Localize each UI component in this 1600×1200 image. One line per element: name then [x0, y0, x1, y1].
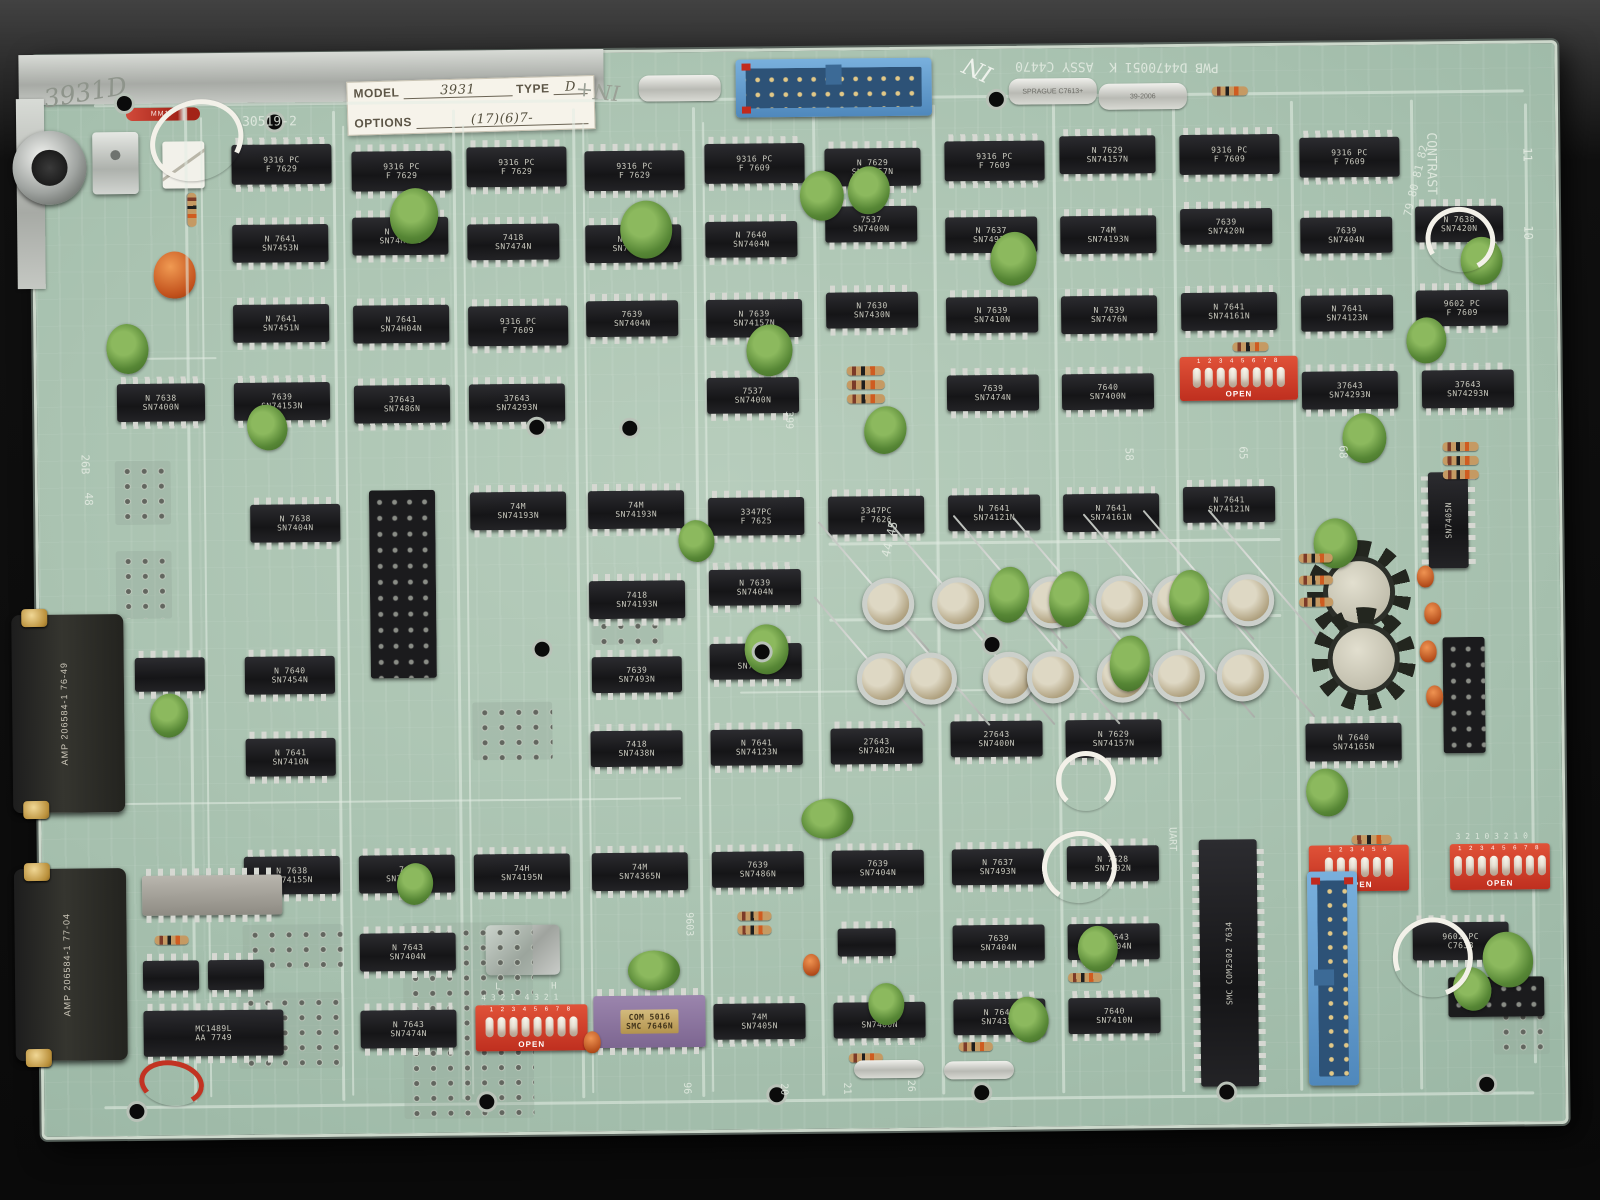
ic-chip-label: 27643 SN7402N: [858, 737, 895, 755]
ic-chip-label: COM 5016 SMC 7646N: [620, 1009, 679, 1034]
ic-chip: N 7640 SN74165N: [1305, 723, 1401, 762]
ic-chip-label: 7640 SN7410N: [1096, 1007, 1133, 1025]
mounting-hole: [479, 1094, 494, 1109]
resistor: [1442, 442, 1478, 451]
ic-chip-label: 7639 SN7404N: [980, 934, 1017, 952]
silkscreen-text: 68: [1337, 445, 1350, 458]
transistor-can: [905, 652, 958, 705]
wire-jumper: [1036, 825, 1123, 910]
dsub-connector-upper: AMP 206584-1 76-49: [11, 614, 125, 813]
tantalum-capacitor: [1420, 640, 1437, 662]
ic-chip: N 7630 SN7430N: [826, 292, 918, 329]
copper-trace: [342, 126, 354, 1096]
ic-chip-label: 74M SN74193N: [1087, 226, 1129, 244]
dip-switch-rocker: [1466, 856, 1474, 876]
ic-chip-label: 9316 PC F 7629: [263, 155, 300, 173]
silkscreen-text: L: [495, 982, 501, 992]
ic-chip: [208, 960, 264, 991]
dip-switch-rocker: [1538, 855, 1546, 875]
ic-chip-label: N 7641 SN7410N: [272, 748, 309, 766]
circuit-board: MM1P MODEL 3931 TYPE D OPTIONS (17)(6)7-…: [30, 40, 1568, 1140]
ic-chip: 37643 SN74293N: [469, 383, 565, 422]
ic-chip-label: 7639 SN7404N: [1328, 226, 1365, 244]
ic-chip-label: 7639 SN7493N: [619, 666, 656, 684]
ic-chip: N 7641 SN74161N: [1181, 292, 1277, 331]
ic-chip: 74M SN7405N: [713, 1003, 805, 1040]
dsub-label: AMP 206584-1 76-49: [58, 662, 69, 766]
idc-notch: [1314, 970, 1334, 986]
ic-chip-label: 7639 SN7404N: [614, 310, 651, 328]
disc-capacitor: [104, 322, 151, 376]
ic-chip: SN7405N: [1428, 472, 1469, 568]
silkscreen-text: UART: [1167, 827, 1178, 851]
resistor: [155, 935, 189, 944]
ic-chip-label: N 7629 SN74157N: [1093, 730, 1135, 748]
ic-chip: 37643 SN74293N: [1302, 371, 1398, 410]
idc-polarity-mark: [1311, 878, 1320, 885]
dip-switch-rocker: [557, 1016, 565, 1036]
ic-chip-label: N 7641 SN74161N: [1090, 504, 1132, 522]
dip-switch: 1 2 3 4 5 6 7 8OPEN: [475, 1004, 587, 1051]
ic-chip: 74H SN74195N: [474, 853, 570, 892]
ic-chip: 7639 SN7420N: [1180, 208, 1272, 245]
ic-chip-label: 37643 SN74293N: [1329, 381, 1371, 399]
silkscreen-text: 10: [1521, 225, 1535, 240]
resistor: [959, 1042, 993, 1051]
dip-switch-rocker: [1193, 368, 1201, 388]
ic-chip-label: 9316 PC F 7629: [498, 158, 535, 176]
ic-chip: N 7639 SN7476N: [1061, 295, 1157, 334]
ic-chip: 7639 SN7404N: [1300, 217, 1392, 254]
ic-chip-label: 9316 PC F 7629: [383, 162, 420, 180]
ic-chip-label: N 7639 SN7404N: [737, 578, 774, 596]
ic-chip-label: 7640 SN7400N: [1090, 383, 1127, 401]
ic-chip-label: 74H SN74195N: [501, 864, 543, 882]
dip-switch-rockers: [1193, 365, 1285, 390]
transistor-can: [1027, 651, 1080, 704]
ic-chip: SMC COM2502 7634: [1199, 839, 1260, 1087]
idc-connector-top: [735, 58, 932, 118]
dip-switch-rocker: [1229, 367, 1237, 387]
ic-chip: N 7638 SN7400N: [117, 383, 205, 422]
ic-chip: N 7641 SN7453N: [232, 224, 328, 263]
ic-chip-label: N 7629 SN74157N: [1086, 146, 1128, 164]
toroid-inductor: [1311, 607, 1416, 712]
ic-chip: 3347PC F 7626: [828, 496, 924, 535]
disc-capacitor: [1302, 765, 1352, 820]
tantalum-capacitor: [1424, 602, 1441, 624]
disc-capacitor: [800, 171, 845, 221]
model-label: MODEL: [353, 85, 399, 100]
hole-grid: [115, 461, 172, 526]
ic-chip-label: N 7638 SN7400N: [143, 393, 180, 411]
silkscreen-text: 21: [841, 1082, 852, 1094]
ic-chip-label: N 7643 SN7404N: [389, 943, 426, 961]
silkscreen-text: 9603: [683, 912, 694, 936]
mounting-hole: [1479, 1077, 1494, 1092]
axial-capacitor: [854, 1060, 924, 1079]
options-value: (17)(6)7-: [416, 111, 589, 129]
resistor: [738, 925, 772, 934]
ic-chip-label: N 7640 SN7404N: [733, 230, 770, 248]
ic-chip: 74M SN74193N: [1060, 215, 1156, 254]
ic-chip: 7640 SN7400N: [1062, 373, 1154, 410]
ic-chip: N 7641 SN74121N: [1183, 486, 1275, 523]
idc-polarity-mark: [742, 106, 751, 113]
transistor-can: [1096, 575, 1149, 628]
bnc-connector: [12, 130, 87, 205]
ic-chip: 3347PC F 7625: [708, 497, 804, 536]
ic-chip: 74M SN74193N: [470, 491, 566, 530]
resistor: [1299, 553, 1333, 562]
ic-chip: [135, 657, 205, 692]
ic-chip-label: 7418 SN74193N: [616, 590, 658, 608]
ic-chip: 27643 SN7402N: [830, 728, 922, 765]
dip-switch-rocker: [1253, 367, 1261, 387]
ic-chip: 7639 SN7404N: [953, 924, 1045, 961]
ic-chip: 7537 SN7400N: [707, 377, 799, 414]
dsub-label: AMP 206584-1 77-04: [61, 913, 72, 1017]
ic-chip: 9316 PC F 7609: [944, 140, 1044, 181]
dip-switch: 1 2 3 4 5 6 7 8OPEN: [1180, 356, 1298, 401]
ic-chip-label: 74M SN74193N: [497, 502, 539, 520]
dsub-connector-lower: AMP 206584-1 77-04: [14, 868, 128, 1061]
idc-polarity-mark: [741, 63, 750, 70]
dip-switch-rocker: [1454, 856, 1462, 876]
dip-switch-rocker: [1277, 367, 1285, 387]
ic-chip: [142, 874, 282, 915]
ic-chip-label: 37643 SN74293N: [496, 394, 538, 412]
ic-chip: 7639 SN7404N: [832, 850, 924, 887]
mounting-hole: [535, 642, 550, 657]
dip-switch: 1 2 3 4 5 6 7 8OPEN: [1450, 843, 1550, 890]
ic-chip-label: 27643 SN7400N: [978, 730, 1015, 748]
silkscreen-text: 26: [905, 1080, 916, 1092]
dip-switch-rocker: [1385, 857, 1393, 877]
resistor: [1068, 973, 1102, 982]
resistor: [847, 380, 885, 389]
resistor: [1299, 597, 1333, 606]
dip-switch-rocker: [545, 1017, 553, 1037]
ic-chip: N 7643 SN7474N: [360, 1010, 456, 1049]
ic-chip-label: N 7639 SN7476N: [1091, 306, 1128, 324]
ic-socket: [1443, 637, 1486, 753]
dip-switch-rocker: [533, 1017, 541, 1037]
ic-chip-label: 9316 PC F 7609: [976, 152, 1013, 170]
resistor: [1212, 86, 1248, 95]
ic-chip-label: 7418 SN7474N: [495, 233, 532, 251]
jackscrew: [24, 863, 50, 881]
toggle-switch: [92, 132, 139, 194]
ic-chip: 9316 PC F 7609: [704, 143, 804, 184]
resistor: [847, 366, 885, 375]
axial-capacitor: [944, 1061, 1014, 1080]
axial-capacitor: [639, 75, 721, 102]
dip-switch-rocker: [1361, 857, 1369, 877]
hole-grid: [472, 702, 553, 761]
ic-chip-label: 9316 PC F 7609: [500, 317, 537, 335]
dip-switch-rocker: [485, 1017, 493, 1037]
ic-chip: N 7629 SN74157N: [1059, 135, 1155, 174]
silkscreen-text: 20: [778, 1083, 789, 1095]
ic-chip: 7639 SN7486N: [712, 851, 804, 888]
transistor-can: [1217, 649, 1270, 702]
dip-switch-rockers: [1454, 852, 1546, 879]
disc-capacitor: [868, 983, 904, 1025]
ic-chip-label: 9316 PC F 7609: [1211, 145, 1248, 163]
ic-chip: N 7641 SN7410N: [246, 738, 336, 777]
jackscrew: [26, 1049, 52, 1067]
copper-trace: [200, 117, 212, 1097]
silkscreen-text: H: [551, 982, 557, 992]
silkscreen-text: 4 3 2 1 4 3 2 1: [481, 993, 558, 1003]
dip-switch-rocker: [1478, 856, 1486, 876]
ic-chip-label: 9316 PC F 7609: [1331, 148, 1368, 166]
copper-trace: [104, 1091, 1534, 1109]
ic-chip: 9316 PC F 7629: [466, 146, 566, 187]
ic-chip: 9316 PC F 7609: [468, 305, 568, 346]
orange-capacitor: [153, 251, 195, 298]
silkscreen-text: 58: [1123, 447, 1136, 460]
dip-switch-open-label: OPEN: [1487, 879, 1514, 888]
ic-chip: 37643 SN74293N: [1422, 370, 1514, 409]
ic-chip-label: SN7405N: [1444, 502, 1453, 539]
dip-switch-rocker: [509, 1017, 517, 1037]
ic-chip-label: N 7637 SN7493N: [980, 858, 1017, 876]
tantalum-capacitor: [1417, 565, 1434, 587]
ic-chip: 74M SN74193N: [588, 490, 684, 529]
ic-socket: [369, 490, 437, 679]
ic-chip-label: N 7641 SN74123N: [736, 738, 778, 756]
ic-chip: N 7641 SN74123N: [1301, 295, 1393, 332]
hole-grid: [116, 551, 173, 620]
jackscrew: [23, 801, 49, 819]
tantalum-capacitor: [803, 954, 820, 976]
silkscreen-text: 3 2 1 0 3 2 1 0: [1456, 831, 1528, 841]
ic-chip-label: 7639 SN7486N: [740, 860, 777, 878]
ic-chip-label: N 7640 SN7454N: [272, 666, 309, 684]
ic-chip: N 7640 SN7454N: [245, 656, 335, 695]
ic-chip-label: 74M SN74193N: [615, 500, 657, 518]
dip-switch-rocker: [497, 1017, 505, 1037]
resistor: [1443, 456, 1479, 465]
ic-chip-label: 9316 PC F 7629: [616, 162, 653, 180]
axial-capacitor: SPRAGUE C7613+: [1009, 78, 1097, 105]
dip-switch-rocker: [1490, 856, 1498, 876]
ic-chip-label: 7537 SN7400N: [853, 215, 890, 233]
ic-chip-label: N 7640 SN74165N: [1333, 733, 1375, 751]
dip-switch-rocker: [521, 1017, 529, 1037]
ic-chip-label: N 7641 SN74121N: [973, 504, 1015, 522]
ic-chip-label: 37643 SN7486N: [384, 395, 421, 413]
ic-chip: 7639 SN7404N: [586, 300, 678, 337]
dip-switch-rocker: [1526, 855, 1534, 875]
ic-chip-label: N 7639 SN7410N: [974, 306, 1011, 324]
silkscreen-text: 26B: [79, 454, 92, 474]
ic-chip-label: 7639 SN7420N: [1208, 217, 1245, 235]
ic-chip-label: N 7641 SN7453N: [262, 234, 299, 252]
silkscreen-text: PWB D4470051 K ASSY C4470: [1015, 58, 1219, 74]
silkscreen-text: 11: [1520, 147, 1534, 162]
tantalum-capacitor: [1426, 685, 1443, 707]
ic-chip-label: 3347PC F 7625: [740, 507, 771, 525]
ic-chip: 7418 SN7474N: [467, 223, 559, 260]
ic-chip-label: 7537 SN7400N: [735, 386, 772, 404]
ic-chip: N 7640 SN7404N: [705, 221, 797, 258]
resistor: [1352, 835, 1392, 844]
ic-chip-label: N 7641 SN74161N: [1208, 302, 1250, 320]
handwriting-text: IN+: [575, 78, 621, 105]
ic-chip: 27643 SN7400N: [950, 720, 1042, 757]
ic-chip: N 7641 SN7451N: [233, 304, 329, 343]
mounting-hole: [1219, 1084, 1234, 1099]
silkscreen-text: 96: [681, 1082, 692, 1094]
idc-notch: [826, 65, 842, 85]
ic-chip: 7639 SN7493N: [592, 656, 682, 693]
ic-chip: 9316 PC F 7609: [1179, 134, 1279, 175]
ic-chip-label: 37643 SN74293N: [1447, 380, 1489, 398]
ic-chip-label: N 7643 SN7474N: [390, 1020, 427, 1038]
ic-chip-label: 74M SN7405N: [741, 1012, 778, 1030]
disc-capacitor: [620, 200, 673, 259]
axial-capacitor-label: SPRAGUE C7613+: [1022, 88, 1083, 96]
ic-chip: 9316 PC F 7629: [584, 150, 684, 191]
ic-chip-label: N 7641 SN74121N: [1208, 495, 1250, 513]
ic-chip: N 7643 SN7404N: [360, 933, 456, 972]
transistor-can: [862, 578, 915, 631]
ic-chip-label: 74M SN74365N: [619, 862, 661, 880]
ic-chip: 37643 SN7486N: [354, 385, 450, 424]
mounting-hole: [989, 92, 1004, 107]
ic-chip: N 7639 SN7404N: [709, 569, 801, 606]
ic-chip: N 7641 SN74123N: [710, 729, 802, 766]
resistor: [1299, 575, 1333, 584]
ic-chip: COM 5016 SMC 7646N: [593, 995, 706, 1048]
ic-chip: 7418 SN74193N: [589, 580, 685, 619]
options-label: OPTIONS: [354, 115, 412, 131]
silkscreen-text: 65: [1237, 446, 1250, 459]
resistor: [847, 394, 885, 403]
ic-chip: MC1489L AA 7749: [143, 1009, 283, 1056]
ic-chip: 9316 PC F 7609: [1299, 137, 1399, 178]
ic-chip-label: 9602 PC F 7609: [1444, 299, 1481, 317]
ic-chip-label: N 7641 SN74H04N: [380, 315, 422, 333]
disc-capacitor: [859, 402, 911, 458]
transistor-can: [1222, 574, 1275, 627]
ic-chip: [838, 928, 896, 957]
disc-capacitor: [800, 796, 856, 841]
ic-chip: N 7639 SN7410N: [946, 296, 1038, 333]
resistor: [187, 193, 196, 227]
disc-capacitor: [628, 950, 680, 991]
dip-switch-rocker: [1241, 367, 1249, 387]
ic-chip: N 7638 SN7404N: [250, 504, 340, 543]
ic-chip: N 7637 SN7493N: [952, 848, 1044, 885]
dip-switch-open-label: OPEN: [518, 1040, 545, 1049]
mounting-hole: [129, 1104, 144, 1119]
dip-switch-rocker: [1514, 855, 1522, 875]
resistor: [1443, 470, 1479, 479]
ic-chip: 74M SN74365N: [592, 852, 688, 891]
dip-switch-rocker: [569, 1016, 577, 1036]
resistor: [1232, 342, 1268, 351]
copper-trace: [1524, 103, 1537, 1063]
ic-chip-label: 9316 PC F 7609: [736, 154, 773, 172]
type-label: TYPE: [516, 81, 550, 96]
mounting-hole: [985, 637, 1000, 652]
resistor: [737, 911, 771, 920]
mounting-hole: [755, 644, 770, 659]
axial-capacitor-label: 39-2006: [1130, 93, 1156, 100]
model-value: 3931: [403, 83, 512, 99]
handwriting-text: IN: [959, 51, 996, 87]
transistor-can: [932, 577, 985, 630]
mounting-hole: [529, 420, 544, 435]
ic-chip: 9316 PC F 7629: [351, 151, 451, 192]
ic-chip: 7418 SN7438N: [590, 730, 682, 767]
tantalum-capacitor: [584, 1031, 601, 1053]
dip-switch-rocker: [1502, 856, 1510, 876]
disc-capacitor: [149, 692, 190, 739]
ic-chip: 9316 PC F 7629: [231, 144, 331, 185]
mounting-hole: [974, 1085, 989, 1100]
ic-chip-label: SMC COM2502 7634: [1224, 921, 1234, 1005]
axial-capacitor: 39-2006: [1099, 83, 1187, 110]
ic-chip-label: 7639 SN7474N: [975, 384, 1012, 402]
ic-chip: [143, 960, 199, 991]
dip-switch-rocker: [1205, 368, 1213, 388]
mounting-hole: [622, 421, 637, 436]
wire-jumper: [1056, 751, 1117, 812]
dip-switch-rocker: [1373, 857, 1381, 877]
dip-switch-rocker: [1265, 367, 1273, 387]
jackscrew: [21, 609, 47, 627]
idc-polarity-mark: [1344, 877, 1353, 884]
ic-chip: 7639 SN7474N: [947, 374, 1039, 411]
ic-chip-label: 7418 SN7438N: [618, 740, 655, 758]
idc-connector-right: [1307, 871, 1359, 1086]
ic-chip: 7640 SN7410N: [1068, 997, 1160, 1034]
ic-chip-label: N 7641 SN7451N: [263, 314, 300, 332]
silkscreen-text: 399: [783, 411, 794, 429]
silkscreen-text: 48: [82, 492, 95, 505]
transistor-can: [857, 653, 910, 706]
ic-chip-label: 7639 SN7404N: [860, 859, 897, 877]
dip-switch-rockers: [485, 1013, 577, 1040]
ic-chip-label: N 7641 SN74123N: [1326, 304, 1368, 322]
disc-capacitor: [1078, 926, 1118, 972]
dip-switch-rocker: [1217, 368, 1225, 388]
copper-trace: [121, 797, 681, 805]
transistor-can: [1153, 650, 1206, 703]
photo-background: { "board": { "colors": {"pcb":"#aac3b1",…: [0, 0, 1600, 1200]
ic-chip-label: N 7638 SN7404N: [277, 514, 314, 532]
ic-chip: N 7641 SN74H04N: [353, 305, 449, 344]
ic-chip-label: N 7630 SN7430N: [854, 301, 891, 319]
ic-chip-label: MC1489L AA 7749: [195, 1024, 232, 1042]
silkscreen-text: 30519-2: [242, 114, 297, 130]
dip-switch-open-label: OPEN: [1226, 389, 1253, 398]
model-sticker: MODEL 3931 TYPE D OPTIONS (17)(6)7-: [346, 75, 595, 136]
